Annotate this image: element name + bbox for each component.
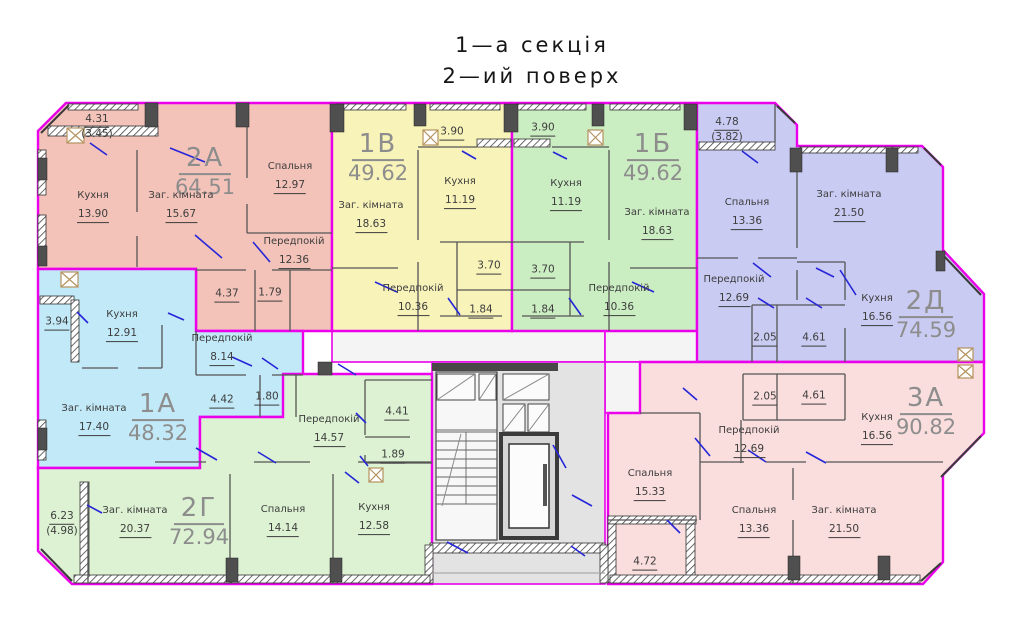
apt-1v-kitchen-label: Кухня 11.19: [444, 175, 476, 209]
apt-1b-livingroom-label: Заг. кімната 18.63: [624, 206, 689, 240]
apt-2a-bedroom-label: Спальня 12.97: [268, 160, 313, 194]
apt-1v-wc-label: 1.84: [468, 298, 493, 319]
apt-1a-hallway-label: Передпокій 8.14: [191, 332, 252, 366]
elevator: [501, 434, 557, 538]
apt-3a-livingroom-label: Заг. кімната 21.50: [811, 504, 876, 538]
apt-3a-bedroom1-label: Спальня 15.33: [628, 467, 673, 501]
apt-2g-hallway-label: Передпокій 14.57: [298, 413, 359, 447]
apt-2d-kitchen-label: Кухня 16.56: [861, 292, 893, 326]
apt-1a-balcony-label: 3.94: [44, 310, 69, 331]
apt-2d-wc-label: 4.61: [801, 326, 826, 347]
apt-2g-bedroom-label: Спальня 14.14: [261, 503, 306, 537]
floor-plan: 1—а секція 2—ий поверх 2А 64.51 4.31 (3.…: [0, 0, 1024, 621]
apt-1v-balcony-label: 3.90: [439, 120, 464, 141]
apt-2g-wc-label: 1.89: [380, 443, 405, 464]
apt-1b-kitchen-label: Кухня 11.19: [550, 177, 582, 211]
apt-1v-id-label: 1В 49.62: [348, 130, 408, 186]
apt-3a-balcony-label: 4.72: [632, 550, 657, 571]
apt-1v-livingroom-label: Заг. кімната 18.63: [338, 199, 403, 233]
apt-2d-id-label: 2Д 74.59: [896, 287, 956, 343]
apt-1v-hallway-label: Передпокій 10.36: [382, 282, 443, 316]
apt-3a-bath-label: 2.05: [752, 385, 777, 406]
apt-2g-balcony-label: 6.23 (4.98): [46, 504, 78, 538]
apt-2a-kitchen-label: Кухня 13.90: [77, 189, 109, 223]
apt-1a-wc-label: 1.80: [254, 385, 279, 406]
apt-2g-bath-label: 4.41: [384, 400, 409, 421]
apt-2d-livingroom-label: Заг. кімната 21.50: [816, 188, 881, 222]
apt-1a-kitchen-label: Кухня 12.91: [106, 308, 138, 342]
apt-1b-balcony-label: 3.90: [530, 116, 555, 137]
apt-2g-kitchen-label: Кухня 12.58: [358, 501, 390, 535]
apt-1b-bath-label: 3.70: [530, 258, 555, 279]
apt-1b-id-label: 1Б 49.62: [623, 130, 683, 186]
apt-1a-id-label: 1А 48.32: [128, 390, 188, 446]
apt-1a-bath-label: 4.42: [209, 388, 234, 409]
apt-2a-bath-label: 4.37: [214, 282, 239, 303]
apt-2a-hallway-label: Передпокій 12.36: [263, 235, 324, 269]
apt-2a-wc-label: 1.79: [257, 281, 282, 302]
apt-1b-wc-label: 1.84: [530, 298, 555, 319]
apt-2a-balcony-label: 4.31 (3.45): [81, 107, 113, 141]
plan-title-section: 1—а секція: [455, 33, 609, 57]
apt-3a-kitchen-label: Кухня 16.56: [861, 411, 893, 445]
apt-3a-wc-label: 4.61: [801, 384, 826, 405]
plan-title-floor: 2—ий поверх: [443, 64, 622, 88]
apt-3a-hallway-label: Передпокій 12.69: [718, 424, 779, 458]
apt-2g-livingroom-label: Заг. кімната 20.37: [102, 504, 167, 538]
apt-2a-livingroom-label: Заг. кімната 15.67: [148, 189, 213, 223]
apt-2d-bath-label: 2.05: [752, 326, 777, 347]
apt-1b-hallway-label: Передпокій 10.36: [588, 282, 649, 316]
apt-2d-balcony-label: 4.78 (3.82): [711, 110, 743, 144]
apt-1a-livingroom-label: Заг. кімната 17.40: [61, 402, 126, 436]
apt-3a-bedroom2-label: Спальня 13.36: [732, 504, 777, 538]
apt-2d-hallway-label: Передпокій 12.69: [703, 273, 764, 307]
apt-2g-id-label: 2Г 72.94: [169, 494, 229, 550]
apt-1v-bath-label: 3.70: [476, 254, 501, 275]
apt-3a-id-label: 3А 90.82: [896, 384, 956, 440]
apt-2d-bedroom-label: Спальня 13.36: [725, 196, 770, 230]
